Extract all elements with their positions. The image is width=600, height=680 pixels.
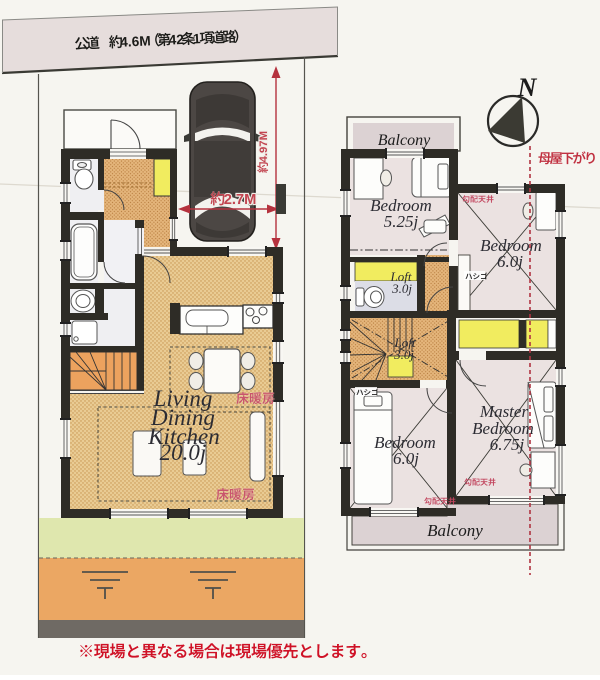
svg-text:Balcony: Balcony [427, 521, 483, 540]
svg-text:6.0j: 6.0j [497, 252, 523, 271]
svg-text:Balcony: Balcony [378, 132, 431, 149]
svg-text:6.75j: 6.75j [490, 435, 525, 454]
svg-text:4.97M: 4.97M [258, 131, 270, 162]
svg-text:N: N [517, 73, 538, 102]
svg-text:5.25j: 5.25j [384, 212, 419, 231]
svg-text:42: 42 [168, 32, 184, 48]
svg-text:6.0j: 6.0j [393, 449, 419, 468]
svg-text:2.7M: 2.7M [224, 192, 257, 208]
svg-text:3.0j: 3.0j [393, 347, 414, 362]
svg-text:4.6M: 4.6M [120, 33, 151, 49]
svg-text:3.0j: 3.0j [391, 281, 412, 296]
svg-text:20.0j: 20.0j [160, 440, 207, 465]
